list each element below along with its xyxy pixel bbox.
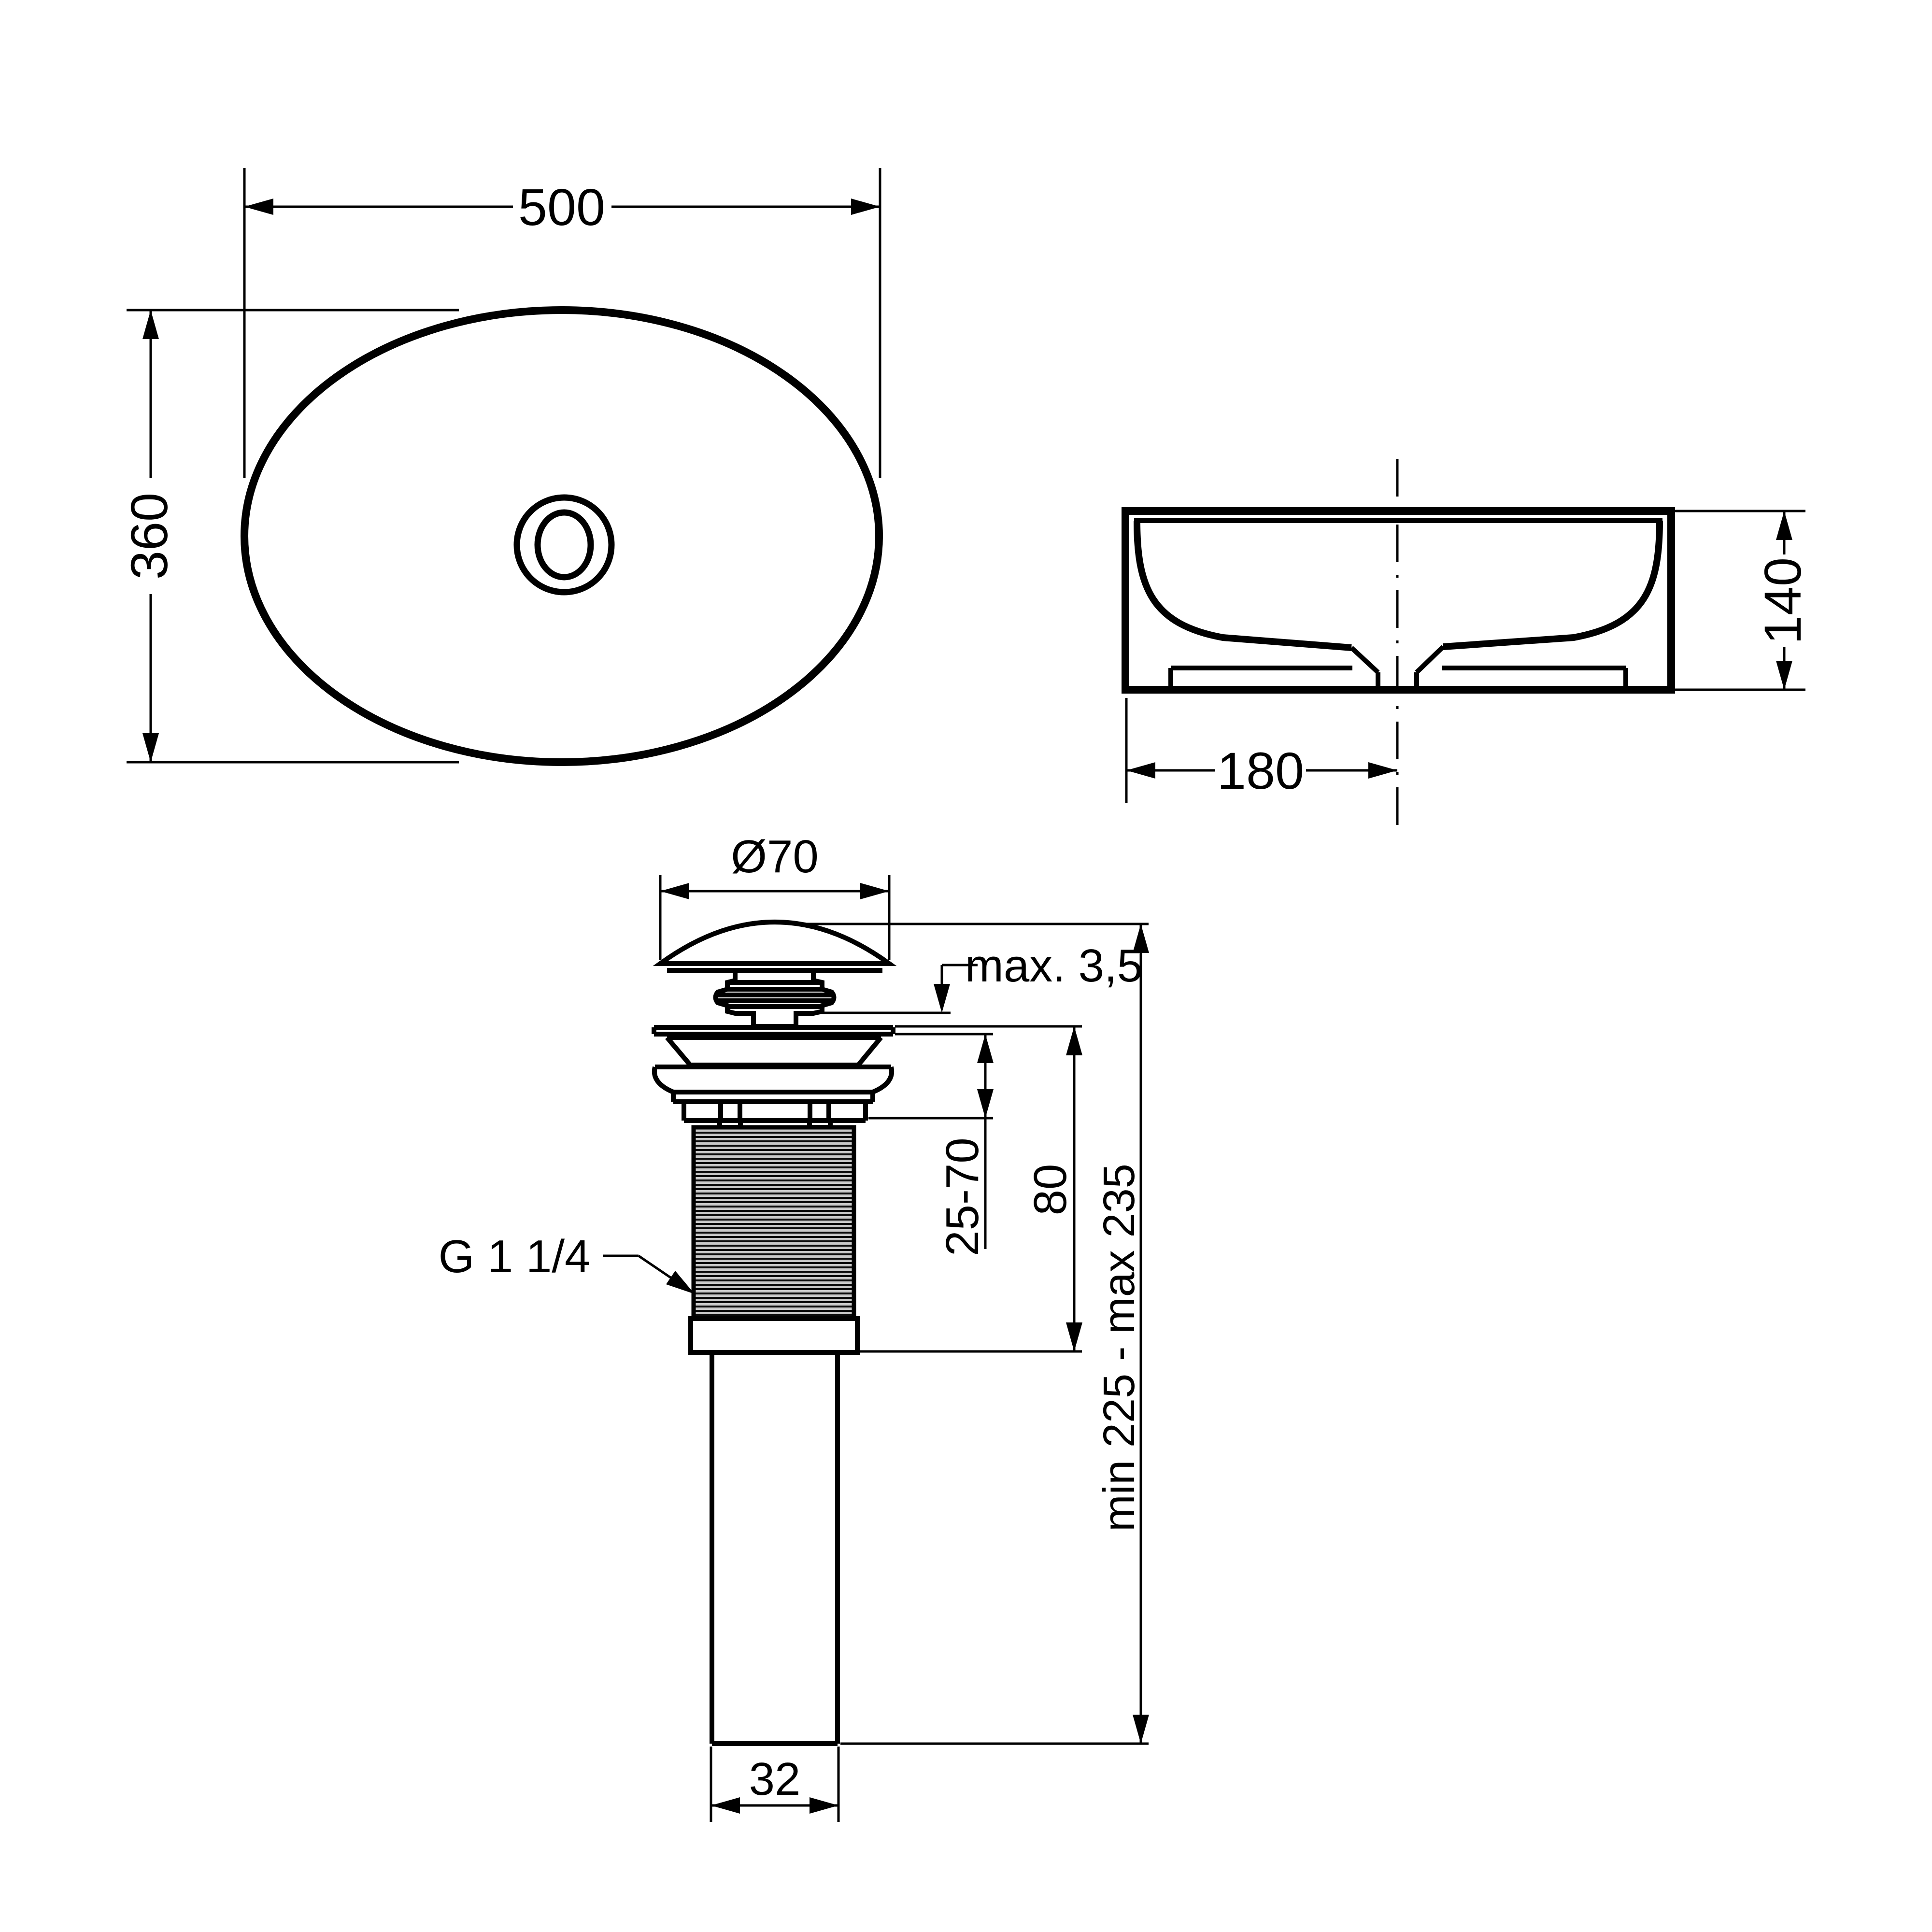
arrowhead-down <box>977 1089 994 1118</box>
arrowhead-right <box>810 1797 838 1814</box>
dimension-drain-offset: 180 <box>1126 698 1397 803</box>
arrowhead-down <box>1776 661 1792 690</box>
arrowhead-up <box>1776 511 1792 540</box>
arrowhead-right <box>860 883 889 899</box>
thread-label: G 1 1/4 <box>439 1231 591 1282</box>
dimension-pipe-diameter: 32 <box>711 1747 838 1822</box>
flange-left-side <box>654 1067 673 1092</box>
dim-label-top-width: 500 <box>518 178 605 236</box>
arrowhead-diagonal <box>666 1271 695 1294</box>
dim-label-max-protrusion: max. 3,5 <box>965 940 1143 992</box>
drain-assembly: Ø70 max. 3,5 <box>439 831 1149 1822</box>
cone-left <box>667 1037 690 1065</box>
dimension-side-height: 140 <box>1675 511 1812 690</box>
arrowhead-right <box>1368 762 1397 779</box>
threaded-body <box>694 1127 854 1319</box>
dim-label-clamping-range: 25-70 <box>937 1137 988 1256</box>
arrowhead-down <box>934 984 950 1013</box>
dim-label-cap-diameter: Ø70 <box>731 831 818 882</box>
lock-nut <box>684 1102 866 1127</box>
arrowhead-left <box>244 199 273 215</box>
arrowhead-down <box>1133 1715 1149 1744</box>
top-view: 500 360 <box>120 168 880 762</box>
seal-cone <box>667 1037 881 1065</box>
arrowhead-up <box>1066 1026 1082 1055</box>
drain-hole-inner-ring <box>538 512 591 577</box>
pop-up-cap-dome <box>660 922 889 964</box>
arrowhead-up <box>1133 924 1149 953</box>
dim-label-pipe-diameter: 32 <box>749 1753 801 1805</box>
arrowhead-right <box>851 199 880 215</box>
tailpipe <box>712 1352 838 1744</box>
arrowhead-left <box>711 1797 740 1814</box>
technical-drawing-canvas: 500 360 <box>0 0 1932 1932</box>
flange-right-side <box>873 1067 892 1092</box>
thread-callout: G 1 1/4 <box>439 1231 695 1294</box>
dim-label-side-height: 140 <box>1753 557 1812 644</box>
collar <box>691 1319 857 1352</box>
arrowhead-down <box>1066 1322 1082 1351</box>
arrowhead-down <box>142 733 159 762</box>
dim-label-drain-offset: 180 <box>1217 741 1304 800</box>
arrowhead-left <box>660 883 689 899</box>
arrowhead-up <box>142 310 159 339</box>
dim-label-installed-length: min 225 - max 235 <box>1094 1164 1144 1532</box>
arrowhead-up <box>977 1034 994 1063</box>
dimension-max-protrusion: max. 3,5 <box>934 940 1143 1013</box>
sealing-plate <box>654 1027 893 1034</box>
dim-label-body-height: 80 <box>1024 1164 1076 1216</box>
dim-label-top-height: 360 <box>120 493 178 580</box>
cone-right <box>858 1037 881 1065</box>
arrowhead-left <box>1126 762 1155 779</box>
side-view: 140 180 <box>1125 459 1812 837</box>
body-flange <box>654 1067 892 1102</box>
